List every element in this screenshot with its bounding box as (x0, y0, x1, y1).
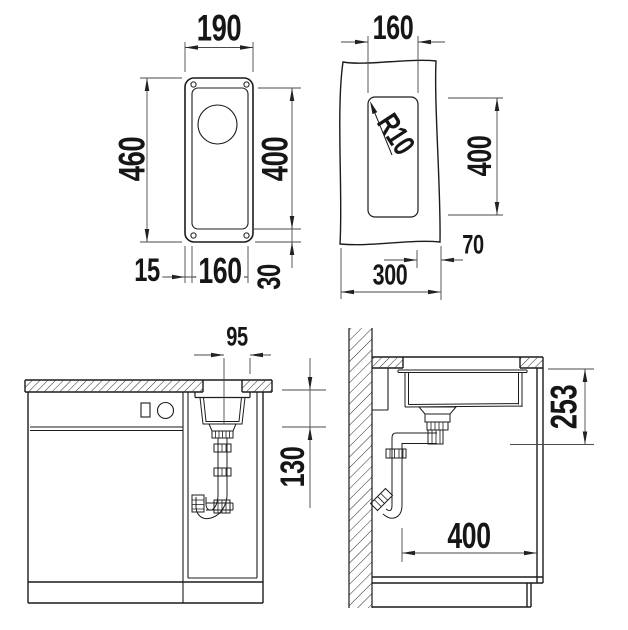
side-view (349, 328, 543, 608)
dim-label-front-bowl-depth: 130 (276, 447, 310, 488)
dim-label-top-edge-offset: 15 (132, 254, 162, 286)
technical-drawing-canvas: 190 460 400 15 160 30 160 R10 400 70 300… (0, 0, 628, 630)
dim-label-cutout-front-offset: 70 (462, 232, 483, 259)
drawing-linework (0, 0, 628, 630)
dim-label-front-drain-center: 95 (226, 324, 247, 351)
dim-label-cutout-width: 160 (373, 11, 414, 45)
dim-label-top-length: 460 (114, 137, 151, 182)
front-view (25, 380, 272, 603)
dim-label-top-bowl-length: 400 (257, 137, 294, 182)
dim-label-top-end-offset: 30 (253, 264, 285, 290)
dim-label-top-width: 190 (197, 10, 242, 47)
dim-label-cutout-depth: 300 (373, 262, 408, 291)
dim-label-cutout-length: 400 (463, 136, 497, 177)
dim-label-side-clearance-height: 253 (546, 385, 583, 430)
sink-top-view (185, 78, 253, 242)
dim-label-top-bowl-width: 160 (196, 253, 244, 289)
dim-label-side-clearance-depth: 400 (447, 518, 490, 554)
